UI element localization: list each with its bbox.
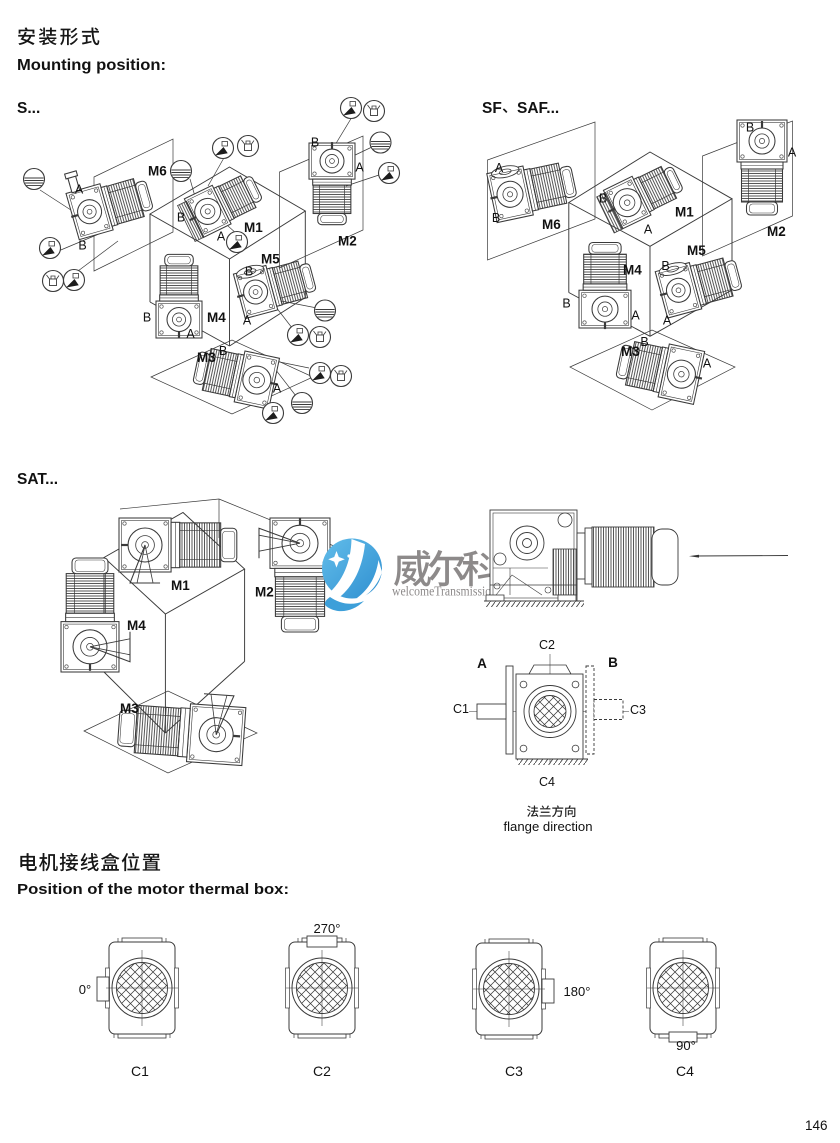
svg-text:A: A [788, 146, 797, 160]
svg-text:B: B [599, 192, 607, 206]
svg-text:A: A [75, 183, 84, 197]
svg-text:M3: M3 [197, 350, 216, 365]
svg-text:B: B [562, 297, 570, 311]
svg-text:S...: S... [17, 100, 40, 117]
svg-text:90°: 90° [676, 1038, 696, 1053]
svg-text:SAT...: SAT... [17, 471, 58, 488]
svg-text:A: A [644, 223, 653, 237]
svg-text:M1: M1 [171, 578, 190, 593]
svg-text:C2: C2 [313, 1063, 331, 1079]
svg-text:flange direction: flange direction [504, 820, 593, 834]
svg-text:SAF...: SAF... [517, 100, 559, 117]
svg-text:A: A [355, 161, 364, 175]
svg-text:A: A [273, 382, 282, 396]
svg-text:B: B [746, 121, 754, 135]
svg-text:A: A [186, 327, 195, 341]
svg-text:M5: M5 [687, 243, 706, 258]
svg-text:C4: C4 [539, 775, 555, 789]
svg-text:146: 146 [805, 1118, 828, 1133]
svg-text:A: A [243, 314, 252, 328]
svg-text:A: A [663, 314, 672, 328]
svg-text:M4: M4 [623, 263, 642, 278]
svg-text:C1: C1 [131, 1063, 149, 1079]
svg-text:M6: M6 [542, 217, 561, 232]
svg-text:0°: 0° [79, 982, 91, 997]
svg-text:B: B [492, 211, 500, 225]
svg-text:M4: M4 [207, 310, 226, 325]
svg-text:B: B [177, 211, 185, 225]
svg-text:B: B [608, 655, 618, 670]
svg-text:M5: M5 [261, 252, 280, 267]
svg-text:270°: 270° [314, 921, 341, 936]
svg-text:C2: C2 [539, 638, 555, 652]
svg-text:B: B [143, 311, 151, 325]
svg-text:M3: M3 [120, 701, 139, 716]
svg-text:C4: C4 [676, 1063, 694, 1079]
svg-text:A: A [217, 230, 226, 244]
svg-text:B: B [245, 265, 253, 279]
svg-text:Mounting position:: Mounting position: [17, 57, 166, 74]
svg-text:180°: 180° [564, 984, 591, 999]
svg-text:B: B [311, 136, 319, 150]
svg-text:C3: C3 [630, 703, 646, 717]
svg-text:M1: M1 [244, 220, 263, 235]
svg-text:welcomeTransmission: welcomeTransmission [392, 584, 497, 599]
svg-text:M4: M4 [127, 618, 146, 633]
svg-text:M3: M3 [621, 344, 640, 359]
svg-text:B: B [640, 335, 648, 349]
svg-text:M1: M1 [675, 205, 694, 220]
svg-text:Position of the motor thermal: Position of the motor thermal box: [17, 881, 289, 898]
svg-text:M2: M2 [767, 224, 786, 239]
svg-text:M2: M2 [338, 234, 357, 249]
svg-text:C1: C1 [453, 702, 469, 716]
svg-text:A: A [703, 357, 712, 371]
svg-text:B: B [219, 344, 227, 358]
svg-text:A: A [477, 656, 487, 671]
svg-text:C3: C3 [505, 1063, 523, 1079]
svg-text:M6: M6 [148, 164, 167, 179]
svg-text:SF: SF [482, 100, 502, 117]
svg-text:M2: M2 [255, 585, 274, 600]
svg-text:B: B [78, 239, 86, 253]
svg-text:A: A [631, 309, 640, 323]
svg-text:A: A [495, 161, 504, 175]
svg-text:B: B [661, 259, 669, 273]
